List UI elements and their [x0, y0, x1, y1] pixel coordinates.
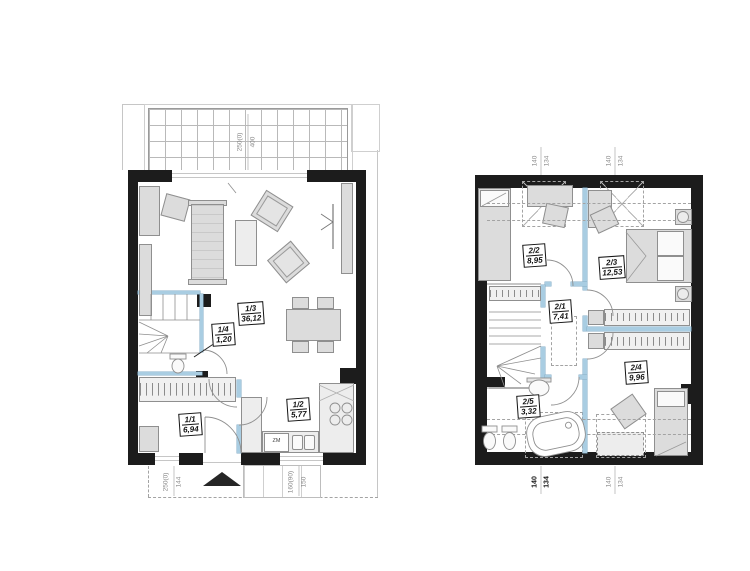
room-area: 7,41	[552, 312, 570, 322]
room-label: 2/4 9,96	[624, 360, 649, 385]
room-area: 36,12	[241, 313, 262, 324]
room-area: 6,94	[182, 425, 200, 435]
dimension-label: 150	[301, 477, 308, 488]
room-label: 1/2 5,77	[286, 397, 311, 422]
room-area: 8,95	[526, 256, 544, 266]
dimension-label: 144	[176, 477, 183, 488]
corner-cabinet-cross	[319, 385, 354, 401]
room-label: 2/5 3,32	[516, 394, 541, 419]
dimension-label: 250(0)	[163, 473, 170, 492]
room-area: 5,77	[290, 410, 308, 420]
blanket-fold-line	[482, 193, 686, 456]
dimension-label: 250(0)	[237, 133, 244, 152]
section-tick	[228, 183, 236, 193]
dimension-label: 160(90)	[288, 471, 295, 493]
room-label: 1/3 36,12	[237, 301, 265, 326]
room-area: 9,96	[628, 373, 646, 383]
room-label: 2/3 12,53	[598, 255, 626, 280]
staircase	[139, 294, 200, 353]
dimension-label: 140	[532, 476, 539, 488]
dimension-label: 140	[606, 156, 613, 167]
dimension-label: 400	[250, 137, 257, 148]
dimension-label: 140	[606, 477, 613, 488]
staircase	[489, 312, 541, 388]
room-label: 2/1 7,41	[548, 299, 573, 324]
tv-icon	[321, 204, 333, 249]
stove-burners	[330, 403, 352, 425]
bidet	[502, 426, 517, 450]
room-label: 1/1 6,94	[178, 412, 203, 437]
dimension-label: 134	[618, 156, 625, 167]
toilet	[170, 354, 186, 373]
dimension-label: 134	[618, 477, 625, 488]
dimension-label: 134	[544, 156, 551, 167]
room-label: 1/4 1,20	[211, 322, 236, 347]
toilet	[482, 426, 497, 450]
room-label: 2/2 8,95	[522, 243, 547, 268]
room-area: 12,53	[602, 267, 623, 278]
plan-linework-overlay	[0, 0, 750, 571]
floor-plans-canvas: ZM	[0, 0, 750, 571]
room-area: 1,20	[215, 335, 233, 345]
room-area: 3,32	[520, 407, 538, 417]
dimension-label: 140	[532, 156, 539, 167]
lamp-circle	[678, 212, 689, 300]
dimension-label: 134	[544, 476, 551, 488]
